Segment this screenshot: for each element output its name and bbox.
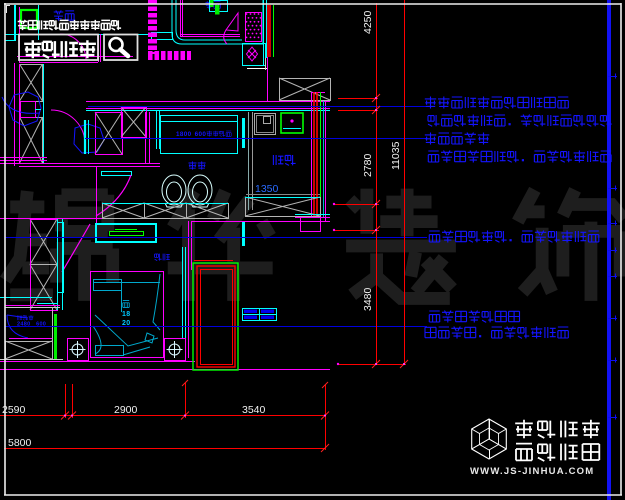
- svg-text:5800: 5800: [8, 437, 32, 449]
- svg-text:0: 0: [126, 320, 130, 327]
- svg-text:WWW.JS-JINHUA.COM: WWW.JS-JINHUA.COM: [470, 466, 594, 477]
- svg-text:2900: 2900: [114, 404, 138, 416]
- svg-text:2780: 2780: [362, 153, 374, 177]
- svg-text:3540: 3540: [242, 404, 266, 416]
- svg-text:3480: 3480: [362, 287, 374, 311]
- svg-text:0: 0: [188, 131, 192, 138]
- svg-text:0: 0: [202, 131, 206, 138]
- svg-text:8: 8: [126, 311, 130, 318]
- svg-text:4250: 4250: [362, 10, 374, 34]
- svg-text:1350: 1350: [255, 183, 279, 195]
- svg-text:11035: 11035: [390, 141, 402, 170]
